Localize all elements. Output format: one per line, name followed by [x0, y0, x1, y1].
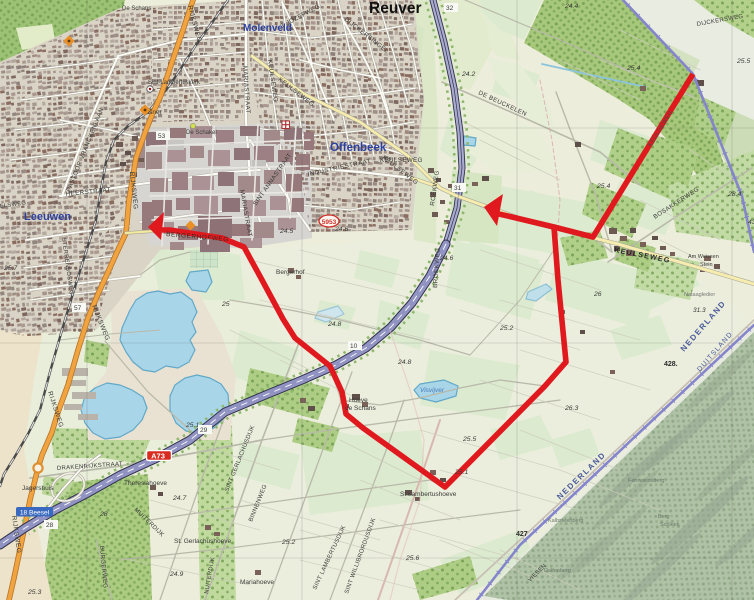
svg-text:Reuver: Reuver — [369, 0, 422, 17]
svg-text:Stein: Stein — [700, 262, 713, 268]
svg-text:24.8: 24.8 — [397, 359, 411, 366]
svg-text:St. Gerlachushoeve: St. Gerlachushoeve — [174, 538, 231, 545]
svg-text:Bergerhof: Bergerhof — [276, 269, 305, 276]
svg-text:18 Beesel: 18 Beesel — [20, 510, 50, 517]
svg-text:St.Lambertushoeve: St.Lambertushoeve — [400, 491, 457, 498]
svg-text:De Schans: De Schans — [122, 6, 151, 12]
svg-text:32: 32 — [446, 5, 454, 12]
svg-text:25.5: 25.5 — [736, 58, 750, 65]
svg-text:25.7: 25.7 — [3, 265, 17, 272]
svg-text:Sint-Lambertuskerk: Sint-Lambertuskerk — [148, 80, 201, 86]
svg-text:28.4: 28.4 — [727, 191, 741, 198]
svg-text:53: 53 — [158, 133, 166, 140]
svg-text:31: 31 — [454, 185, 462, 192]
svg-text:25.1: 25.1 — [185, 422, 199, 429]
svg-text:Dalfenberg: Dalfenberg — [544, 568, 571, 574]
svg-text:25.1: 25.1 — [454, 469, 468, 476]
svg-text:24.4: 24.4 — [564, 3, 578, 10]
svg-text:Theresiahoeve: Theresiahoeve — [124, 480, 167, 487]
svg-text:Kalbsteenberg: Kalbsteenberg — [548, 518, 583, 524]
svg-text:Jagershuis: Jagershuis — [22, 485, 54, 492]
svg-text:26.3: 26.3 — [564, 405, 578, 412]
svg-text:57: 57 — [74, 305, 82, 312]
svg-text:Nataagledier: Nataagledier — [684, 292, 715, 298]
svg-text:25.3: 25.3 — [27, 589, 41, 596]
svg-text:24.5: 24.5 — [279, 228, 293, 235]
svg-text:Hoeve: Hoeve — [349, 397, 368, 404]
svg-text:A73: A73 — [151, 452, 165, 461]
svg-text:De Schakel: De Schakel — [186, 130, 217, 136]
svg-text:Offenbeek: Offenbeek — [330, 142, 387, 154]
svg-text:Schleek: Schleek — [660, 522, 680, 528]
svg-text:428.: 428. — [664, 361, 678, 368]
svg-text:Fehrweinsberg: Fehrweinsberg — [628, 478, 664, 484]
svg-text:25.6: 25.6 — [405, 555, 419, 562]
svg-text:24.8: 24.8 — [327, 321, 341, 328]
svg-text:25.2: 25.2 — [499, 325, 513, 332]
svg-text:28: 28 — [46, 522, 54, 529]
svg-text:31.3: 31.3 — [693, 307, 706, 314]
svg-text:Visvijver: Visvijver — [420, 387, 445, 394]
svg-text:Am Weissen: Am Weissen — [688, 254, 719, 260]
svg-text:24.6: 24.6 — [439, 255, 453, 262]
svg-text:24.7: 24.7 — [172, 495, 186, 502]
svg-text:Mariahoeve: Mariahoeve — [240, 579, 274, 586]
svg-text:10: 10 — [350, 343, 358, 350]
svg-text:KEULSEWEG: KEULSEWEG — [380, 157, 423, 164]
svg-text:26: 26 — [593, 291, 602, 298]
svg-text:24.2: 24.2 — [461, 71, 475, 78]
svg-text:29: 29 — [200, 427, 208, 434]
svg-text:25.4: 25.4 — [626, 65, 640, 72]
svg-text:Leeuwen: Leeuwen — [24, 211, 71, 223]
svg-text:25.5: 25.5 — [462, 436, 476, 443]
svg-text:de Schans: de Schans — [345, 405, 376, 412]
svg-text:28: 28 — [99, 511, 108, 518]
svg-text:25: 25 — [221, 301, 230, 308]
svg-text:24.6: 24.6 — [334, 226, 348, 233]
svg-text:Berg: Berg — [658, 514, 670, 520]
svg-text:25.2: 25.2 — [281, 539, 295, 546]
svg-text:427: 427 — [516, 531, 528, 538]
svg-text:43: 43 — [748, 219, 754, 226]
svg-text:25.4: 25.4 — [596, 183, 610, 190]
svg-text:24.9: 24.9 — [169, 571, 183, 578]
svg-text:5953: 5953 — [322, 219, 337, 226]
